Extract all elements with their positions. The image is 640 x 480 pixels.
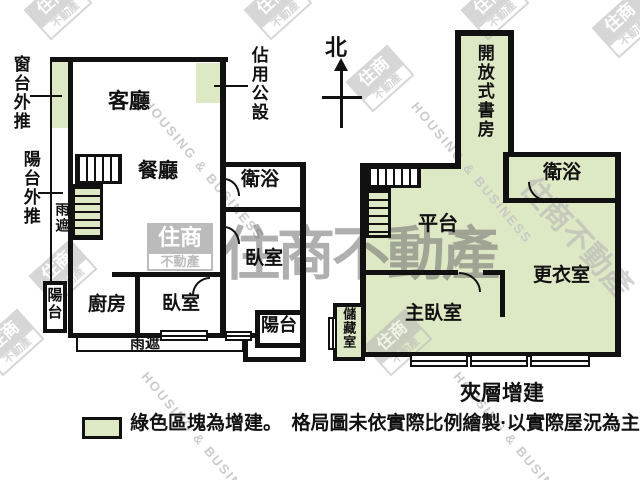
wall bbox=[300, 310, 306, 362]
label-walkin-closet: 更衣室 bbox=[533, 266, 590, 287]
housing-watermark: HOUSING & BUSINESS bbox=[152, 95, 332, 113]
brand-stamp-icon: 住商 不動產 bbox=[345, 45, 414, 113]
window-symbol bbox=[328, 317, 337, 350]
wall bbox=[508, 30, 514, 157]
brand-stamp-icon: 住商 不動產 bbox=[591, 0, 640, 58]
label-bedroom: 臥室 bbox=[162, 294, 200, 315]
wall bbox=[455, 30, 461, 169]
leader-line bbox=[30, 95, 62, 97]
label-bathroom: 衛浴 bbox=[543, 163, 581, 184]
brand-stamp-icon: 住商 不動產 bbox=[243, 0, 312, 40]
label-window-pushout: 窗台外推 bbox=[10, 55, 29, 131]
wall bbox=[220, 207, 306, 212]
label-occupied-common-area: 佔用公設 bbox=[248, 46, 267, 122]
label-rain-canopy: 雨遮 bbox=[54, 202, 69, 234]
wall bbox=[220, 57, 226, 338]
window-symbol bbox=[160, 330, 208, 341]
brand-stamp-icon: 住商 不動產 bbox=[23, 0, 92, 40]
leader-line bbox=[38, 192, 63, 194]
window-symbol bbox=[225, 331, 252, 341]
label-master-bedroom: 主臥室 bbox=[405, 304, 462, 325]
brand-stamp-icon: 住商 不動產 bbox=[0, 309, 45, 377]
floor-plan-canvas: 住商 不動產 住商 不動產 住商 不動產 住商 不動產 住商 不動產 住商 不動… bbox=[0, 0, 640, 480]
label-dining-room: 餐廳 bbox=[138, 160, 178, 182]
door-swing bbox=[224, 178, 240, 196]
north-arrow-crossbar bbox=[322, 96, 362, 99]
wall bbox=[243, 357, 306, 362]
wall bbox=[50, 57, 228, 62]
leader-line bbox=[214, 85, 248, 87]
wall bbox=[500, 270, 505, 317]
label-balcony-pushout: 陽台外推 bbox=[20, 150, 39, 226]
wall-thin bbox=[50, 57, 52, 283]
wall bbox=[455, 30, 514, 36]
label-storage-room: 儲藏室 bbox=[341, 307, 355, 349]
window-symbol bbox=[470, 354, 528, 367]
brand-logo-bottom: 不動產 bbox=[147, 252, 213, 271]
legend-green-swatch bbox=[82, 417, 122, 439]
brand-logo-top: 住商 bbox=[147, 223, 213, 252]
staircase-upper-run bbox=[75, 154, 122, 184]
label-balcony: 陽台 bbox=[261, 316, 297, 336]
brand-logo-watermark: 住商 不動產 bbox=[147, 223, 213, 271]
wall bbox=[300, 162, 306, 315]
legend-note: 綠色區塊為增建。 格局圖未依實際比例繪製·以實際屋況為主。 bbox=[130, 414, 640, 435]
label-bathroom: 衛浴 bbox=[241, 170, 279, 191]
north-label: 北 bbox=[325, 36, 347, 60]
label-open-study: 開放式書房 bbox=[474, 44, 493, 139]
wall bbox=[615, 152, 621, 357]
staircase-lower-run bbox=[72, 184, 103, 240]
wall bbox=[68, 57, 73, 338]
label-living-room: 客廳 bbox=[108, 90, 150, 113]
label-kitchen: 廚房 bbox=[88, 295, 126, 316]
wall bbox=[509, 152, 621, 157]
north-arrow-line bbox=[340, 70, 343, 128]
label-bedroom: 臥室 bbox=[245, 249, 283, 270]
label-mezzanine-addition: 夾層增建 bbox=[460, 382, 544, 405]
addition-block-window-pushout bbox=[52, 60, 68, 128]
wall bbox=[360, 163, 461, 169]
wall bbox=[255, 343, 306, 348]
wall bbox=[503, 198, 621, 203]
wall bbox=[503, 152, 509, 203]
window-symbol bbox=[410, 354, 468, 367]
wall bbox=[220, 162, 306, 167]
wall bbox=[363, 270, 458, 275]
label-rain-canopy: 雨遮 bbox=[130, 336, 160, 353]
label-balcony: 陽台 bbox=[45, 287, 62, 321]
wall bbox=[135, 277, 140, 338]
label-platform: 平台 bbox=[418, 213, 458, 235]
window-symbol bbox=[530, 354, 590, 367]
housing-watermark: HOUSING & BUSINESS bbox=[150, 368, 330, 386]
staircase-lower-run bbox=[366, 188, 391, 238]
